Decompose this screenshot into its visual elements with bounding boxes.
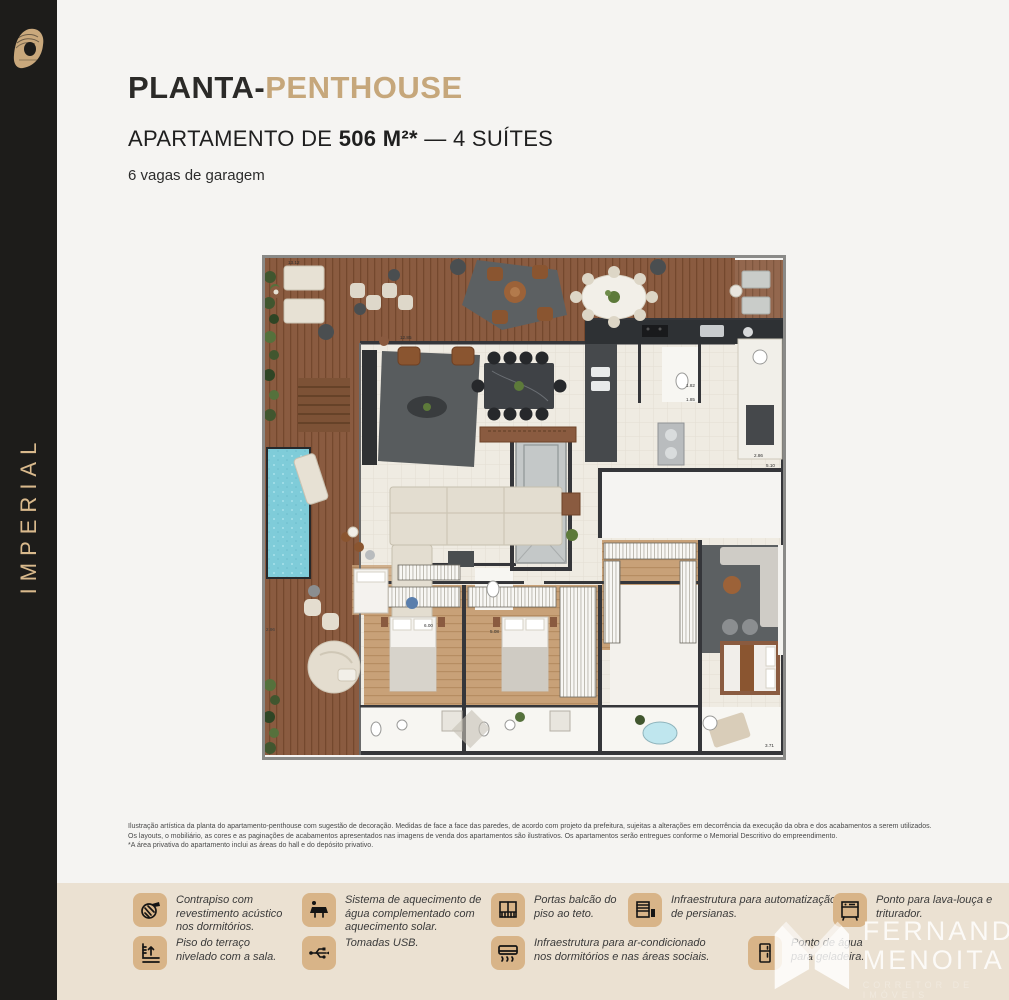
feature-tomadas-usb: Tomadas USB. (302, 936, 465, 970)
persianas-icon (628, 893, 662, 927)
garage-info: 6 vagas de garagem (128, 167, 265, 184)
realtor-watermark: FERNANDO MENOITA CORRETOR DE IMÓVEIS (769, 917, 1009, 1000)
feature-ar-condicionado: Infraestrutura para ar-condicionado nos … (491, 936, 716, 970)
feature-text: Piso do terraço nivelado com a sala. (176, 936, 291, 964)
svg-text:13.12: 13.12 (288, 260, 300, 265)
features-band: Contrapiso com revestimento acústico nos… (57, 883, 1009, 1000)
ar-condicionado-icon (491, 936, 525, 970)
feature-text: Infraestrutura para ar-condicionado nos … (534, 936, 716, 964)
svg-text:3.71: 3.71 (765, 743, 774, 748)
feature-text: Tomadas USB. (345, 936, 465, 951)
feature-piso-nivelado: Piso do terraço nivelado com a sala. (133, 936, 291, 970)
svg-text:2.96: 2.96 (266, 627, 275, 632)
watermark-name: FERNANDO MENOITA (863, 917, 1009, 975)
disclaimer-line-1: Ilustração artística da planta do aparta… (128, 822, 1000, 832)
svg-text:1.85: 1.85 (686, 397, 695, 402)
brochure-page: IMPERIAL PLANTA-PENTHOUSE APARTAMENTO DE… (0, 0, 1009, 1000)
watermark-tagline: CORRETOR DE IMÓVEIS (863, 980, 1009, 1000)
piso-nivelado-icon (133, 936, 167, 970)
page-title: PLANTA-PENTHOUSE (128, 70, 463, 106)
disclaimer-line-2: Os layouts, o mobiliário, as cores e as … (128, 832, 1000, 842)
svg-text:6.00: 6.00 (424, 623, 433, 628)
svg-text:2.86: 2.86 (754, 453, 763, 458)
disclaimer: Ilustração artística da planta do aparta… (128, 822, 1000, 851)
disclaimer-line-3: *A área privativa do apartamento inclui … (128, 841, 1000, 851)
feature-text: Contrapiso com revestimento acústico nos… (176, 893, 294, 935)
feature-text: Portas balcão do piso ao teto. (534, 893, 629, 921)
aquecimento-solar-icon (302, 893, 336, 927)
title-dark: PLANTA- (128, 70, 265, 105)
floor-plan: 13.12 12.85 2.96 2.86 5.10 6.00 5.08 3.7… (262, 255, 786, 760)
svg-text:12.85: 12.85 (400, 335, 412, 340)
deck-stairs (298, 378, 350, 432)
feature-contrapiso: Contrapiso com revestimento acústico nos… (133, 893, 294, 935)
brand-imperial: IMPERIAL (16, 436, 42, 595)
sidebar: IMPERIAL (0, 0, 57, 1000)
svg-text:5.08: 5.08 (490, 629, 499, 634)
suite-2 (493, 617, 557, 691)
building-void (598, 468, 786, 538)
tomadas-usb-icon (302, 936, 336, 970)
title-accent: PENTHOUSE (265, 70, 462, 105)
svg-text:1.82: 1.82 (686, 383, 695, 388)
feature-aquecimento-solar: Sistema de aquecimento de água complemen… (302, 893, 497, 935)
menoita-m-logo-icon (769, 917, 855, 993)
portas-balcao-icon (491, 893, 525, 927)
contrapiso-acustico-icon (133, 893, 167, 927)
feature-text: Sistema de aquecimento de água complemen… (345, 893, 497, 935)
feature-portas-balcao: Portas balcão do piso ao teto. (491, 893, 629, 927)
apartment-subtitle: APARTAMENTO DE 506 M²* — 4 SUÍTES (128, 126, 553, 152)
svg-text:5.10: 5.10 (766, 463, 775, 468)
imperial-shell-logo-icon (10, 26, 48, 72)
